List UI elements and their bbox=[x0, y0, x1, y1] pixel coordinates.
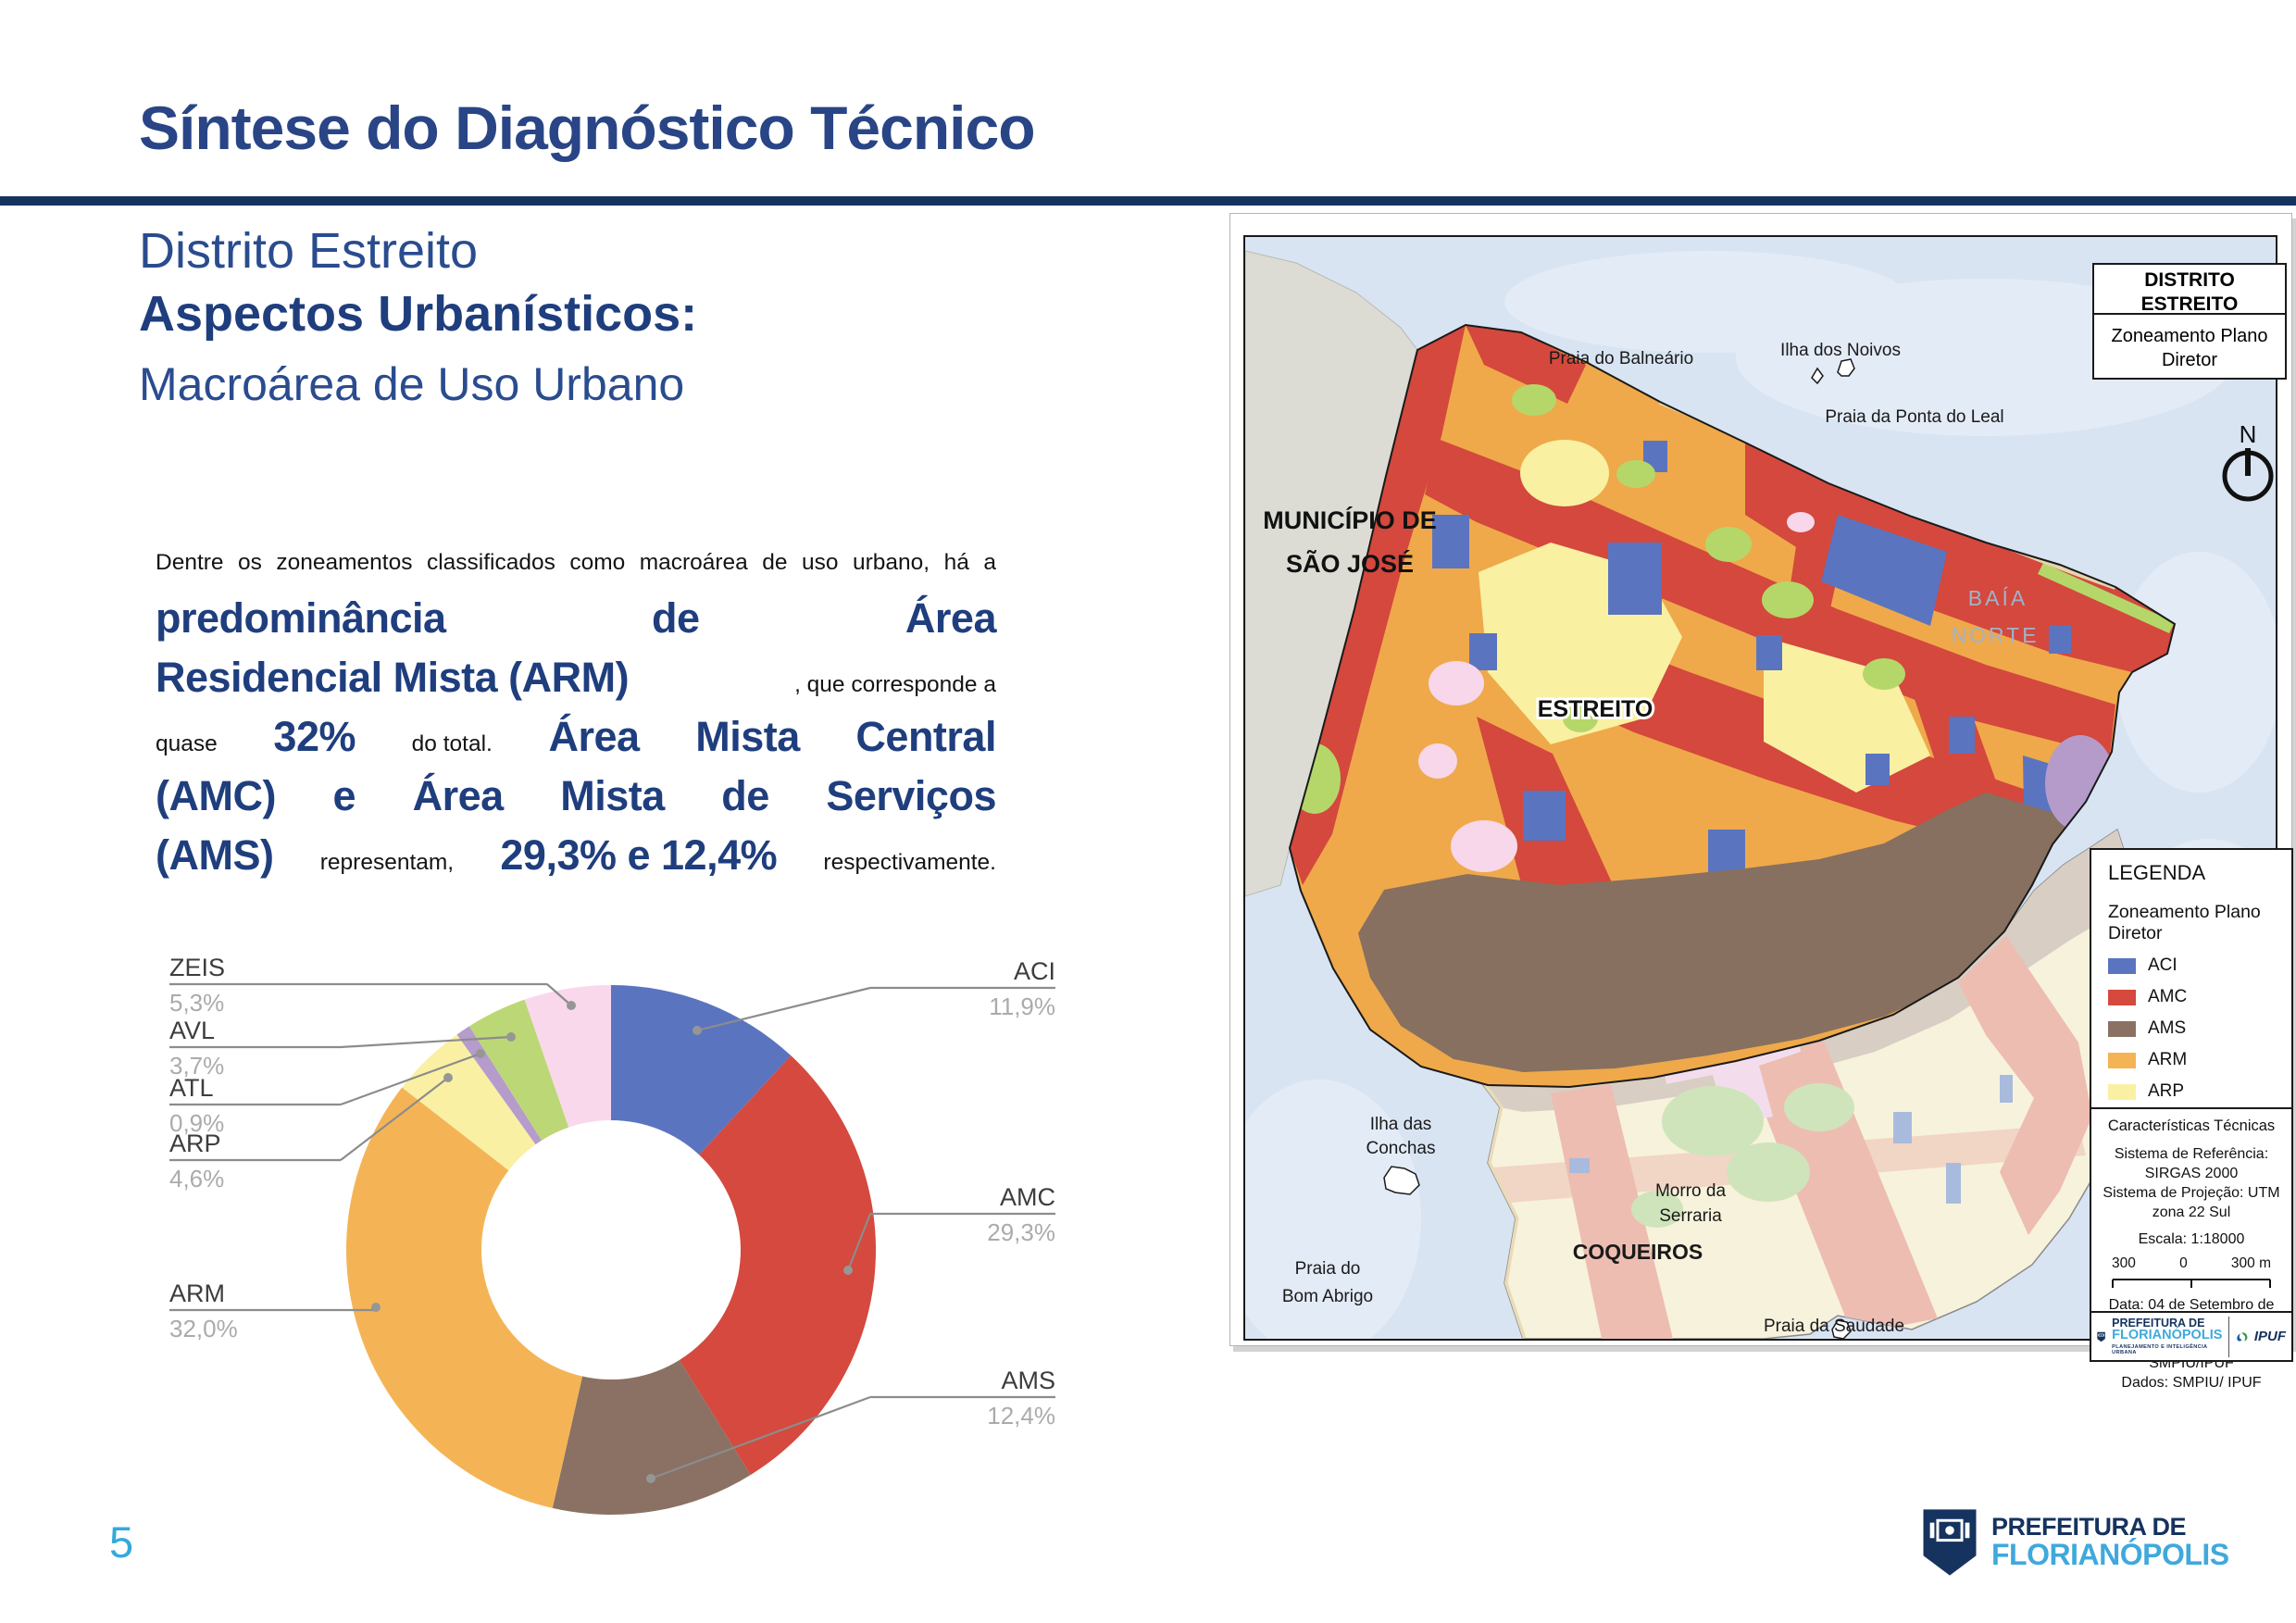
slice-label-avl: AVL bbox=[169, 1017, 215, 1044]
paragraph-segment: Área bbox=[413, 772, 504, 820]
slice-value-amc: 29,3% bbox=[987, 1218, 1055, 1246]
map-title-box: DISTRITO ESTREITO bbox=[2092, 263, 2287, 315]
legend-title: LEGENDA bbox=[2108, 861, 2291, 885]
leader-dot bbox=[646, 1474, 655, 1483]
leader-dot bbox=[443, 1073, 453, 1082]
tech-dados: Dados: SMPIU/ IPUF bbox=[2091, 1374, 2291, 1393]
label-baia-line1: BAÍA bbox=[1968, 586, 2028, 610]
slice-value-avl: 3,7% bbox=[169, 1052, 224, 1080]
paragraph-segment: como bbox=[569, 550, 625, 576]
paragraph-segment: de bbox=[762, 550, 787, 576]
legend-subtitle: Zoneamento Plano Diretor bbox=[2108, 902, 2291, 944]
paragraph-segment: de bbox=[652, 594, 700, 643]
paragraph-segment: zoneamentos bbox=[276, 550, 412, 576]
paragraph-segment: uso bbox=[802, 550, 839, 576]
north-arrow: N bbox=[2215, 422, 2280, 511]
paragraph-segment: Mista bbox=[695, 713, 800, 761]
label-baia-line2: NORTE bbox=[1951, 623, 2039, 647]
paragraph-segment: 29,3% e 12,4% bbox=[500, 831, 777, 880]
map-title-line1: DISTRITO bbox=[2094, 268, 2285, 293]
leader-dot bbox=[567, 1001, 576, 1010]
legend-item-arp: ARP bbox=[2108, 1081, 2291, 1102]
scalebar bbox=[2112, 1278, 2271, 1289]
slice-label-amc: AMC bbox=[1000, 1183, 1055, 1211]
slice-label-aci: ACI bbox=[1014, 957, 1055, 985]
paragraph-segment: Dentre bbox=[156, 550, 224, 576]
map-subtitle-box: Zoneamento Plano Diretor bbox=[2092, 313, 2287, 380]
footer-logo-line1: PREFEITURA DE bbox=[1991, 1515, 2229, 1541]
paragraph-segment: Área bbox=[905, 594, 996, 643]
legend-label: ARM bbox=[2148, 1050, 2187, 1070]
leader-dot bbox=[476, 1049, 485, 1058]
slice-label-ams: AMS bbox=[1001, 1367, 1055, 1394]
slice-value-ams: 12,4% bbox=[987, 1402, 1055, 1429]
legend-item-amc: AMC bbox=[2108, 987, 2291, 1007]
paragraph-segment: os bbox=[238, 550, 262, 576]
slide: Síntese do Diagnóstico Técnico Distrito … bbox=[0, 0, 2296, 1623]
legend-swatch bbox=[2108, 990, 2136, 1005]
legend-label: ARP bbox=[2148, 1081, 2184, 1102]
paragraph-line: (AMC)eÁreaMistadeServiços bbox=[156, 772, 996, 820]
paragraph-line: Dentreoszoneamentosclassificadoscomomacr… bbox=[156, 550, 996, 576]
paragraph-segment: 32% bbox=[273, 713, 356, 761]
slice-value-arm: 32,0% bbox=[169, 1315, 238, 1342]
label-coqueiros: COQUEIROS bbox=[1573, 1240, 1703, 1264]
paragraph-segment: Central bbox=[855, 713, 996, 761]
legend-label: AMC bbox=[2148, 987, 2187, 1007]
map-tech-box: Características Técnicas Sistema de Refe… bbox=[2090, 1107, 2293, 1313]
legend-item-arm: ARM bbox=[2108, 1050, 2291, 1070]
paragraph-segment: do total. bbox=[412, 731, 493, 757]
title-rule bbox=[0, 196, 2296, 206]
logo-pref-line2: FLORIANÓPOLIS bbox=[2112, 1329, 2222, 1342]
footer-logo-line2: FLORIANÓPOLIS bbox=[1991, 1540, 2229, 1570]
page-number: 5 bbox=[109, 1517, 133, 1567]
map-canvas: MUNICÍPIO DE SÃO JOSÉ Praia do Balneário… bbox=[1243, 235, 2277, 1341]
label-estreito: ESTREITO bbox=[1538, 696, 1653, 722]
leader-dot bbox=[693, 1026, 702, 1035]
map-panel: MUNICÍPIO DE SÃO JOSÉ Praia do Balneário… bbox=[1229, 213, 2292, 1346]
logo-pref-tagline: PLANEJAMENTO E INTELIGÊNCIA URBANA bbox=[2112, 1344, 2222, 1355]
paragraph-segment: há bbox=[944, 550, 969, 576]
paragraph-segment: , que corresponde a bbox=[794, 672, 996, 698]
paragraph-line: quase32%do total.ÁreaMistaCentral bbox=[156, 713, 996, 761]
summary-paragraph: Dentreoszoneamentosclassificadoscomomacr… bbox=[156, 550, 996, 891]
tech-ref: Sistema de Referência: SIRGAS 2000 bbox=[2091, 1145, 2291, 1184]
map-logos: PREFEITURA DE FLORIANÓPOLIS PLANEJAMENTO… bbox=[2090, 1311, 2293, 1362]
slice-value-zeis: 5,3% bbox=[169, 989, 224, 1017]
label-praia-balneario: Praia do Balneário bbox=[1549, 349, 1693, 368]
logo-ipuf: IPUF bbox=[2254, 1329, 2286, 1344]
label-ponta-leal: Praia da Ponta do Leal bbox=[1825, 407, 2003, 427]
prefeitura-shield-icon bbox=[2097, 1321, 2105, 1353]
subtitle-district: Distrito Estreito bbox=[139, 222, 478, 280]
paragraph-line: Residencial Mista (ARM), que corresponde… bbox=[156, 654, 996, 702]
legend-item-ams: AMS bbox=[2108, 1018, 2291, 1039]
paragraph-segment: Mista bbox=[560, 772, 665, 820]
leader-dot bbox=[506, 1032, 516, 1042]
north-label: N bbox=[2240, 422, 2257, 448]
label-morro-1: Morro da bbox=[1655, 1181, 1726, 1201]
scalebar-mid: 0 bbox=[2179, 1255, 2188, 1273]
slice-value-atl: 0,9% bbox=[169, 1109, 224, 1137]
paragraph-segment: de bbox=[721, 772, 769, 820]
footer-logo: PREFEITURA DE FLORIANÓPOLIS bbox=[1921, 1507, 2229, 1578]
tech-proj: Sistema de Projeção: UTM zona 22 Sul bbox=[2091, 1184, 2291, 1223]
subtitle-aspects: Aspectos Urbanísticos: bbox=[139, 285, 697, 343]
paragraph-segment: representam, bbox=[320, 850, 454, 876]
legend-swatch bbox=[2108, 1053, 2136, 1068]
paragraph-segment: classificados bbox=[427, 550, 555, 576]
legend-swatch bbox=[2108, 1084, 2136, 1100]
paragraph-segment: (AMC) bbox=[156, 772, 276, 820]
label-bom-abrigo-2: Bom Abrigo bbox=[1282, 1287, 1373, 1306]
paragraph-segment: Área bbox=[549, 713, 640, 761]
legend-label: AMS bbox=[2148, 1018, 2186, 1039]
paragraph-segment: predominância bbox=[156, 594, 446, 643]
legend-item-aci: ACI bbox=[2108, 955, 2291, 976]
legend-swatch bbox=[2108, 1021, 2136, 1037]
donut-slice-arm bbox=[346, 1088, 582, 1508]
leader-dot bbox=[843, 1266, 853, 1275]
slice-label-arm: ARM bbox=[169, 1280, 225, 1307]
paragraph-line: (AMS)representam,29,3% e 12,4%respectiva… bbox=[156, 831, 996, 880]
label-praia-saudade: Praia da Saudade bbox=[1764, 1317, 1904, 1336]
footer-shield-icon bbox=[1921, 1507, 1978, 1578]
paragraph-segment: urbano, bbox=[853, 550, 930, 576]
leader-dot bbox=[371, 1303, 381, 1312]
paragraph-segment: quase bbox=[156, 731, 218, 757]
scalebar-numbers: 300 0 300 m bbox=[2112, 1255, 2271, 1273]
label-ilha-conchas-2: Conchas bbox=[1366, 1139, 1436, 1158]
paragraph-segment: e bbox=[333, 772, 356, 820]
paragraph-line: predominânciadeÁrea bbox=[156, 594, 996, 643]
slice-value-aci: 11,9% bbox=[989, 993, 1055, 1020]
leader-line bbox=[697, 988, 870, 1030]
label-morro-2: Serraria bbox=[1659, 1206, 1722, 1226]
donut-chart: ACI11,9%AMC29,3%AMS12,4%ARM32,0%ARP4,6%A… bbox=[0, 907, 1176, 1574]
label-ilha-conchas-1: Ilha das bbox=[1370, 1115, 1432, 1134]
label-ilha-noivos: Ilha dos Noivos bbox=[1780, 341, 1901, 360]
paragraph-segment: a bbox=[983, 550, 996, 576]
tech-title: Características Técnicas bbox=[2091, 1117, 2291, 1136]
paragraph-segment: (AMS) bbox=[156, 831, 273, 880]
paragraph-segment: Residencial Mista (ARM) bbox=[156, 654, 629, 702]
slice-label-zeis: ZEIS bbox=[169, 954, 225, 981]
ipuf-swirl-icon bbox=[2236, 1322, 2248, 1352]
label-municipio-line1: MUNICÍPIO DE bbox=[1263, 506, 1437, 534]
subtitle-macroarea: Macroárea de Uso Urbano bbox=[139, 357, 684, 411]
legend-swatch bbox=[2108, 958, 2136, 974]
label-municipio-line2: SÃO JOSÉ bbox=[1286, 549, 1414, 578]
map-legend: LEGENDA Zoneamento Plano Diretor ACIAMCA… bbox=[2090, 848, 2293, 1109]
legend-label: ACI bbox=[2148, 955, 2177, 976]
label-bom-abrigo-1: Praia do bbox=[1295, 1259, 1361, 1279]
scalebar-left: 300 bbox=[2112, 1255, 2136, 1273]
paragraph-segment: Serviços bbox=[826, 772, 996, 820]
page-title: Síntese do Diagnóstico Técnico bbox=[139, 93, 1035, 163]
scalebar-right: 300 m bbox=[2231, 1255, 2271, 1273]
tech-escala: Escala: 1:18000 bbox=[2091, 1230, 2291, 1250]
slice-value-arp: 4,6% bbox=[169, 1165, 224, 1192]
paragraph-segment: respectivamente. bbox=[823, 850, 996, 876]
paragraph-segment: macroárea bbox=[640, 550, 748, 576]
